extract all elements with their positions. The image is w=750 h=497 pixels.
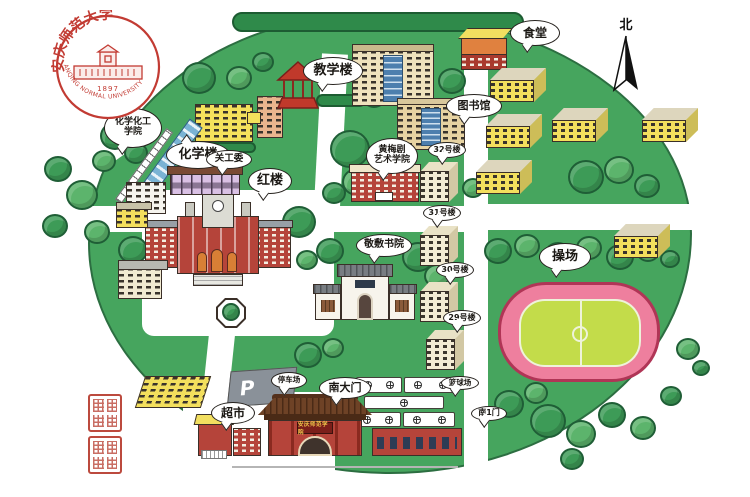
tree	[566, 420, 596, 448]
south-gate-building: 安庆师范学院	[258, 394, 372, 462]
gate-right-wall	[372, 428, 462, 456]
label-dorm-30: 30号楼	[436, 262, 474, 278]
label-dorm-31: 31号楼	[423, 205, 461, 221]
label-text: 南1门	[478, 409, 500, 418]
planter-bush	[222, 303, 240, 321]
small-building	[116, 202, 152, 228]
dorm-29-building	[426, 330, 464, 370]
tree	[568, 160, 604, 194]
tree	[634, 174, 660, 198]
tree	[182, 62, 216, 94]
basketball-court	[403, 412, 455, 427]
basketball-hoop-icon	[385, 416, 393, 424]
label-playground: 操场	[539, 243, 591, 271]
dorm-block	[486, 114, 542, 148]
label-text: 黄梅剧 艺术学院	[374, 146, 410, 165]
label-supermarket: 超市	[211, 402, 255, 424]
tree	[322, 338, 344, 358]
teaching-building	[352, 44, 434, 106]
dorm-31-building	[420, 226, 458, 266]
label-text: 图书馆	[458, 100, 491, 112]
basketball-hoop-icon	[400, 399, 408, 407]
tree	[42, 214, 68, 238]
label-text: 超市	[221, 407, 245, 420]
tree	[514, 234, 540, 258]
label-text: 南大门	[329, 382, 362, 394]
street-line	[232, 466, 458, 468]
dorm-block	[476, 160, 532, 194]
tree	[294, 342, 322, 368]
gate-plaque: 安庆师范学院	[297, 422, 333, 434]
basketball-court	[364, 396, 444, 409]
label-text: 敬敷书院	[364, 240, 404, 251]
label-huangmei-college: 黄梅剧 艺术学院	[366, 138, 418, 174]
tree	[560, 448, 584, 470]
tree	[226, 66, 252, 90]
compass-north-label: 北	[604, 14, 648, 33]
basketball-hoop-icon	[413, 416, 421, 424]
label-text: 红楼	[257, 174, 283, 188]
tree	[598, 402, 626, 428]
label-text: 关工委	[215, 154, 244, 164]
basketball-hoop-icon	[438, 416, 446, 424]
label-text: 32号楼	[433, 146, 460, 155]
label-text: 食堂	[523, 27, 547, 40]
logo-year: 1897	[97, 85, 119, 93]
canteen-building	[458, 28, 512, 70]
tree	[252, 52, 274, 72]
seal-stamp	[88, 436, 122, 474]
parking-p-label: P	[239, 376, 256, 401]
tree	[676, 338, 700, 360]
small-building	[118, 260, 168, 300]
tree	[484, 238, 512, 264]
campus-map: P 安庆师范学院 化学楼 教学楼 食堂 图书馆 化学化工 学院 关工委 红楼 黄…	[0, 0, 750, 497]
dorm-block	[490, 68, 546, 102]
compass: 北	[604, 14, 648, 90]
tree	[692, 360, 710, 376]
label-dorm-29: 29号楼	[443, 310, 481, 326]
tree	[630, 416, 656, 440]
tree	[44, 156, 72, 182]
tree	[66, 180, 98, 210]
label-parking-lot: 停车场	[271, 372, 307, 389]
tree	[330, 130, 370, 168]
tree	[660, 386, 682, 406]
dorm-32-building	[420, 162, 458, 202]
running-track	[498, 282, 660, 382]
basketball-hoop-icon	[386, 381, 394, 389]
tree	[604, 156, 634, 184]
label-text: 31号楼	[428, 209, 455, 218]
label-red-building: 红楼	[248, 168, 292, 194]
tree	[92, 150, 116, 172]
dorm-block	[642, 108, 698, 142]
jingfu-academy-building	[313, 260, 417, 320]
tree	[524, 382, 548, 404]
label-text: 篮球场	[449, 379, 472, 387]
tree	[530, 404, 566, 438]
label-text: 教学楼	[313, 64, 352, 78]
dorm-block	[614, 224, 670, 258]
label-text: 29号楼	[448, 314, 475, 323]
tree	[84, 220, 110, 244]
label-text: 30号楼	[441, 266, 468, 275]
basketball-hoop-icon	[414, 381, 422, 389]
compass-needle-icon	[611, 34, 641, 92]
label-south-gate: 南大门	[319, 377, 371, 399]
football-field	[519, 299, 641, 367]
label-south-gate-1: 南1门	[471, 406, 507, 421]
university-logo: 安庆师范大学 1897 ANQING NORMAL UNIVERSITY	[40, 10, 180, 124]
tree	[438, 68, 466, 94]
gate-plaque-text: 安庆师范学院	[298, 420, 332, 436]
label-basketball-court: 篮球场	[441, 376, 479, 390]
label-teaching-building: 教学楼	[303, 57, 363, 85]
road	[464, 70, 488, 497]
ggw-building	[167, 166, 243, 196]
seal-stamp	[88, 394, 122, 432]
label-dorm-32: 32号楼	[428, 142, 466, 158]
label-ggw: 关工委	[206, 150, 252, 169]
dorm-block	[552, 108, 608, 142]
tree	[322, 182, 346, 204]
small-building	[140, 376, 206, 408]
gate-left-wall	[233, 428, 261, 456]
label-jingfu-academy: 敬敷书院	[356, 234, 412, 257]
label-text: 操场	[552, 250, 578, 264]
label-text: 停车场	[278, 376, 301, 384]
label-canteen: 食堂	[510, 20, 560, 46]
label-library: 图书馆	[446, 94, 502, 118]
